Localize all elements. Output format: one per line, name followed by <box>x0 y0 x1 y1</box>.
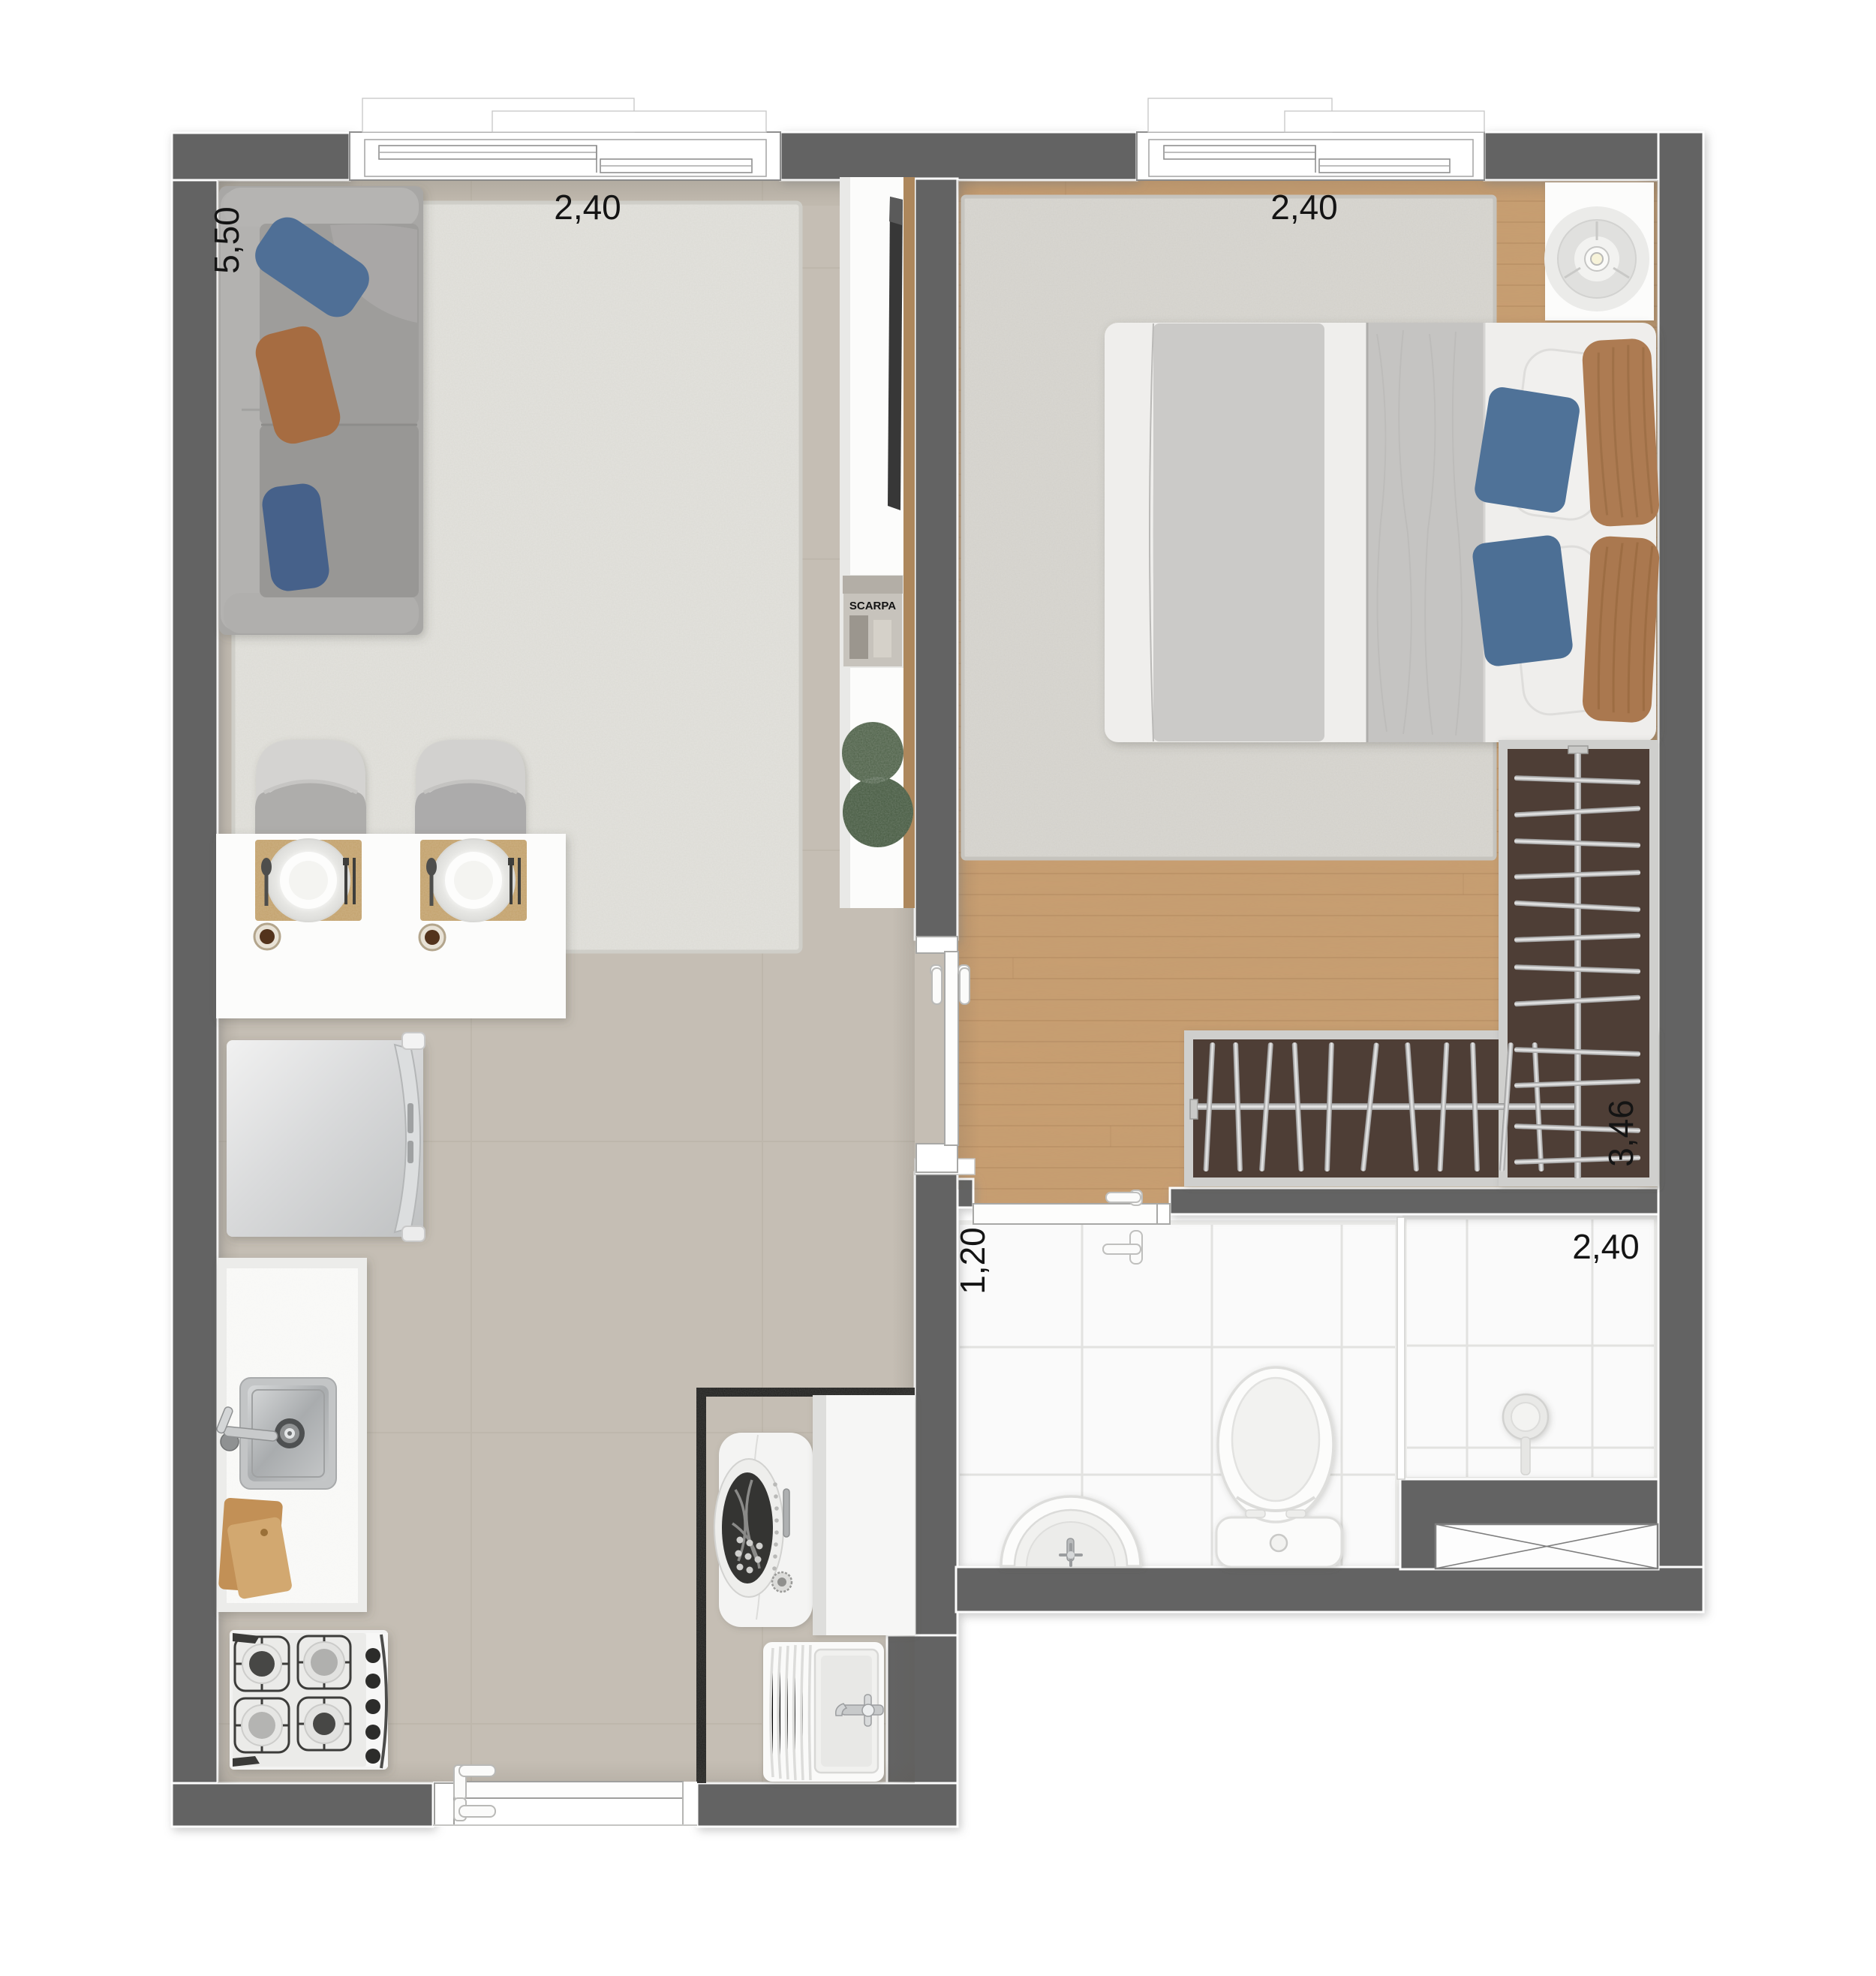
svg-text:3,46: 3,46 <box>1601 1099 1640 1167</box>
svg-text:5,50: 5,50 <box>207 206 246 274</box>
svg-text:2,40: 2,40 <box>1270 188 1338 227</box>
svg-text:SCARPA: SCARPA <box>849 600 896 612</box>
svg-text:1,20: 1,20 <box>953 1227 992 1295</box>
svg-text:2,40: 2,40 <box>554 188 621 227</box>
svg-text:2,40: 2,40 <box>1572 1227 1640 1266</box>
